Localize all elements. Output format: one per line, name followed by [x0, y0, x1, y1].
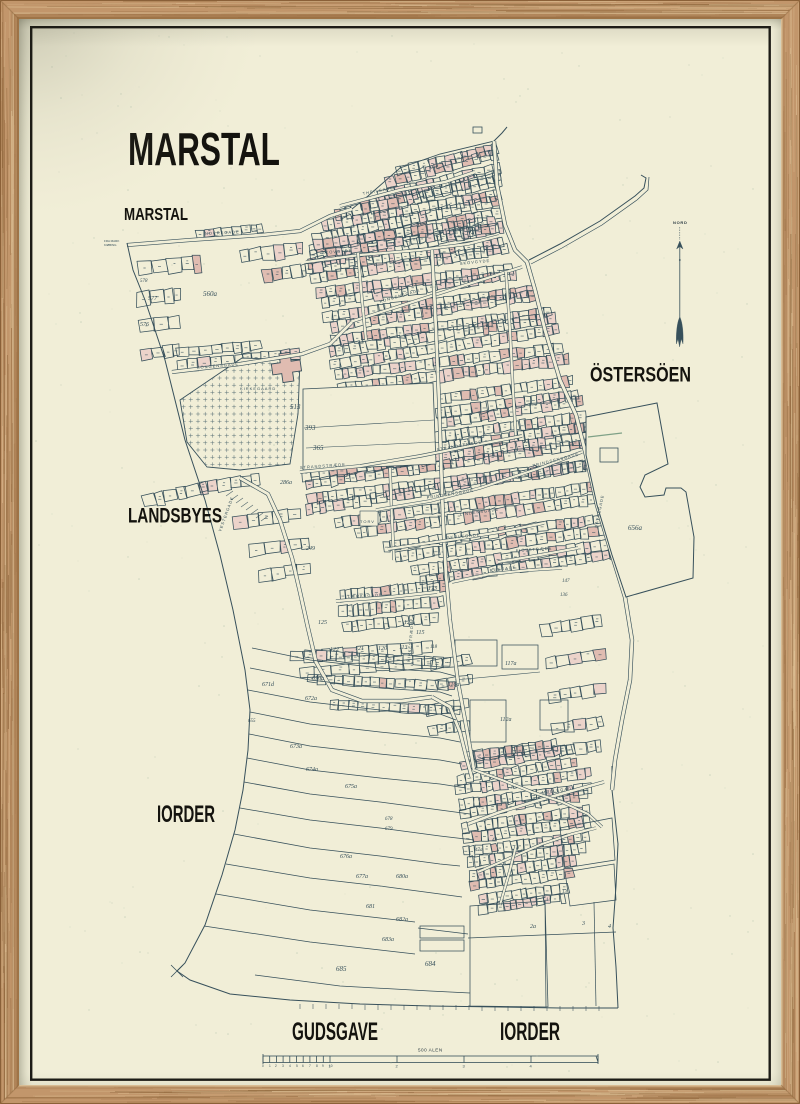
- svg-text:681: 681: [366, 904, 375, 910]
- svg-text:286a: 286a: [280, 480, 292, 486]
- svg-text:14: 14: [546, 898, 552, 903]
- svg-text:671d: 671d: [262, 682, 275, 688]
- svg-text:674a: 674a: [306, 766, 318, 773]
- svg-text:125: 125: [318, 620, 327, 626]
- svg-text:577: 577: [148, 296, 158, 302]
- svg-text:13: 13: [562, 890, 568, 895]
- svg-text:ÖSTERSÖEN: ÖSTERSÖEN: [590, 363, 691, 386]
- svg-text:NORD: NORD: [673, 220, 688, 225]
- svg-text:677a: 677a: [356, 874, 368, 880]
- svg-text:IORDER: IORDER: [500, 1019, 560, 1046]
- svg-text:KIØBING: KIØBING: [104, 243, 117, 247]
- svg-text:2: 2: [275, 1064, 277, 1068]
- svg-text:147: 147: [562, 579, 570, 584]
- svg-text:7: 7: [309, 1064, 311, 1068]
- svg-text:673a: 673a: [290, 744, 302, 750]
- svg-text:672a: 672a: [305, 696, 317, 702]
- svg-text:LANDSBYES: LANDSBYES: [128, 503, 222, 527]
- svg-text:680a: 680a: [396, 874, 408, 880]
- svg-text:121: 121: [355, 646, 364, 652]
- svg-text:118: 118: [430, 645, 438, 650]
- svg-text:48: 48: [492, 838, 498, 843]
- svg-text:KIRKEGAARD: KIRKEGAARD: [240, 386, 276, 391]
- svg-text:684: 684: [425, 960, 436, 968]
- svg-text:115: 115: [416, 630, 425, 636]
- svg-text:117a: 117a: [505, 661, 517, 667]
- svg-text:47a: 47a: [475, 848, 483, 853]
- svg-text:393: 393: [304, 424, 316, 432]
- svg-text:500 ALEN: 500 ALEN: [418, 1048, 443, 1053]
- svg-text:0: 0: [262, 1064, 264, 1068]
- svg-text:656a: 656a: [628, 524, 643, 532]
- svg-text:113: 113: [399, 645, 408, 651]
- svg-text:670a: 670a: [312, 676, 324, 682]
- svg-text:112a: 112a: [500, 717, 512, 723]
- svg-text:675a: 675a: [345, 784, 357, 790]
- svg-text:5: 5: [296, 1064, 298, 1068]
- svg-text:685: 685: [336, 965, 347, 973]
- svg-text:8: 8: [316, 1064, 318, 1068]
- svg-text:122: 122: [330, 647, 339, 653]
- svg-text:3: 3: [581, 921, 585, 927]
- svg-text:124: 124: [404, 619, 413, 626]
- svg-text:136: 136: [560, 593, 568, 598]
- svg-text:576: 576: [140, 322, 149, 328]
- svg-text:676a: 676a: [340, 854, 352, 860]
- svg-text:4: 4: [289, 1064, 291, 1068]
- svg-text:116a: 116a: [448, 682, 460, 688]
- svg-text:120: 120: [378, 646, 387, 652]
- svg-text:679: 679: [385, 827, 393, 832]
- svg-text:655: 655: [248, 719, 256, 724]
- svg-text:578: 578: [140, 279, 148, 284]
- svg-text:560a: 560a: [203, 290, 218, 298]
- svg-text:4: 4: [608, 923, 611, 930]
- svg-text:TORV: TORV: [360, 519, 375, 524]
- svg-text:2a: 2a: [530, 924, 536, 930]
- svg-text:6: 6: [302, 1064, 304, 1068]
- svg-text:513: 513: [290, 403, 301, 411]
- svg-text:1: 1: [269, 1064, 271, 1068]
- svg-text:678: 678: [385, 817, 393, 822]
- svg-text:GUDSGAVE: GUDSGAVE: [292, 1018, 378, 1046]
- svg-text:IORDER: IORDER: [157, 802, 215, 828]
- svg-text:682a: 682a: [396, 917, 408, 923]
- svg-text:173: 173: [428, 586, 437, 592]
- svg-text:9: 9: [322, 1064, 324, 1068]
- svg-text:3: 3: [282, 1064, 284, 1068]
- svg-text:683a: 683a: [382, 937, 394, 943]
- svg-text:249: 249: [306, 545, 315, 552]
